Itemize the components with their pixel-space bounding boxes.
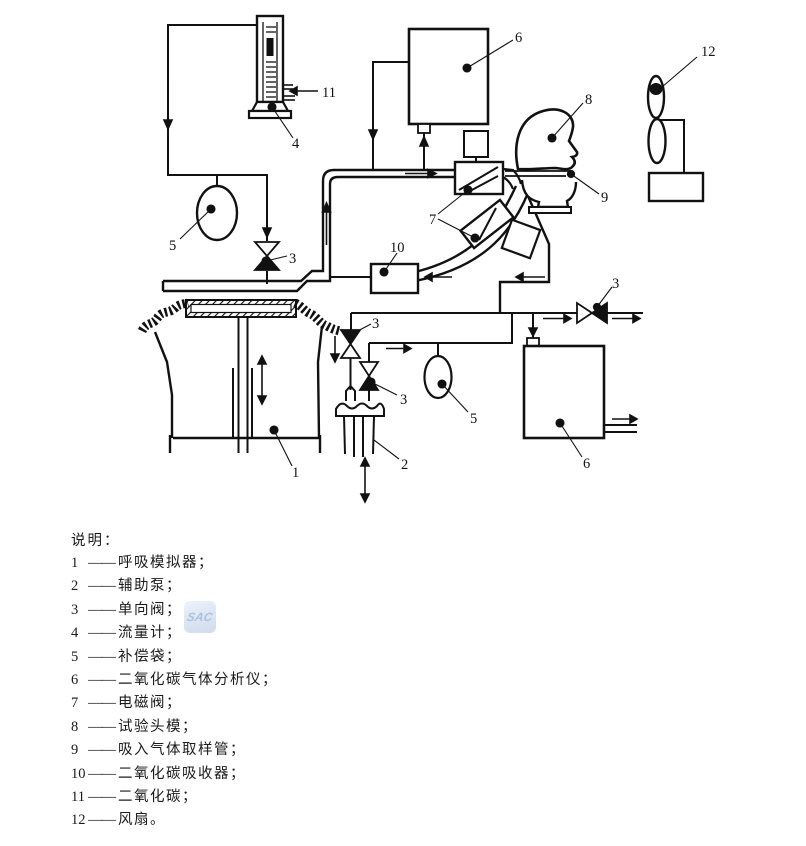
legend-num: 2 (71, 575, 88, 598)
legend-num: 12 (71, 809, 88, 832)
legend-dash: —— (88, 599, 118, 622)
legend-num: 1 (71, 552, 88, 575)
legend-item-9: 9——吸入气体取样管； (71, 739, 278, 762)
document-page: 4 11 5 3 1 2 3 3 5 3 6 6 7 8 9 10 12 SAC… (0, 0, 806, 846)
co2-analyzer-bottom (524, 338, 637, 438)
legend-item-8: 8——试验头模； (71, 716, 278, 739)
label-10: 10 (390, 240, 405, 256)
label-4: 4 (292, 136, 300, 152)
co2-absorber (371, 264, 418, 293)
mask-inlet-tube (503, 169, 521, 189)
legend-label: 补偿袋； (118, 649, 182, 665)
legend-dash: —— (88, 669, 118, 692)
legend-num: 8 (71, 716, 88, 739)
legend-dash: —— (88, 622, 118, 645)
mask (522, 180, 576, 213)
legend-item-5: 5——补偿袋； (71, 646, 278, 669)
legend-num: 10 (71, 763, 88, 786)
label-8: 8 (585, 92, 592, 108)
legend-item-6: 6——二氧化碳气体分析仪； (71, 669, 278, 692)
legend-label: 二氧化碳； (118, 789, 198, 805)
legend-dash: —— (88, 809, 118, 832)
legend-dash: —— (88, 716, 118, 739)
label-3-exhaust: 3 (612, 276, 619, 292)
legend-item-12: 12——风扇。 (71, 809, 278, 832)
solenoid-valve-a (455, 131, 503, 194)
legend-label: 电磁阀； (118, 695, 182, 711)
check-valve-exhaust (577, 303, 607, 323)
compensation-bag-right (425, 356, 452, 398)
legend-dash: —— (88, 763, 118, 786)
legend-dash: —— (88, 739, 118, 762)
legend-label: 二氧化碳吸收器； (118, 766, 246, 782)
legend-item-7: 7——电磁阀； (71, 692, 278, 715)
legend-num: 9 (71, 739, 88, 762)
legend-dash: —— (88, 646, 118, 669)
legend-num: 3 (71, 599, 88, 622)
label-12: 12 (701, 44, 716, 60)
label-3-pump-a: 3 (372, 316, 379, 332)
label-6-bottom: 6 (583, 456, 590, 472)
legend-item-11: 11——二氧化碳； (71, 786, 278, 809)
legend-title: 说明： (71, 529, 278, 552)
label-7: 7 (429, 212, 436, 228)
legend-item-4: 4——流量计； (71, 622, 278, 645)
legend-num: 11 (71, 786, 88, 809)
legend-label: 风扇。 (118, 812, 166, 828)
legend: 说明： 1——呼吸模拟器； 2——辅助泵； 3——单向阀； 4——流量计； 5—… (71, 529, 278, 833)
legend-dash: —— (88, 575, 118, 598)
co2-supply-loop (168, 25, 267, 284)
seal-right (295, 303, 340, 331)
legend-dash: —— (88, 692, 118, 715)
legend-label: 吸入气体取样管； (118, 742, 246, 758)
legend-label: 单向阀； (118, 602, 182, 618)
check-valve-left (255, 242, 279, 270)
label-6-top: 6 (515, 30, 522, 46)
breathing-simulator (142, 300, 340, 453)
auxiliary-pump (336, 386, 384, 457)
seal-left (142, 303, 188, 331)
label-2: 2 (401, 457, 408, 473)
legend-item-2: 2——辅助泵； (71, 575, 278, 598)
legend-num: 5 (71, 646, 88, 669)
label-3-pump-b: 3 (400, 392, 407, 408)
legend-num: 4 (71, 622, 88, 645)
legend-dash: —— (88, 786, 118, 809)
label-5-left: 5 (169, 238, 176, 254)
label-11: 11 (322, 85, 336, 101)
legend-dash: —— (88, 552, 118, 575)
legend-num: 7 (71, 692, 88, 715)
compensation-bag-left (197, 186, 237, 240)
flow-meter-float (267, 38, 274, 56)
schematic-diagram: 4 11 5 3 1 2 3 3 5 3 6 6 7 8 9 10 12 (0, 0, 806, 525)
label-5-right: 5 (470, 411, 477, 427)
co2-analyzer-top (409, 29, 488, 133)
legend-item-10: 10——二氧化碳吸收器； (71, 763, 278, 786)
legend-item-3: 3——单向阀； (71, 599, 278, 622)
legend-item-1: 1——呼吸模拟器； (71, 552, 278, 575)
test-head-model (516, 110, 577, 170)
label-9: 9 (601, 190, 608, 206)
legend-label: 二氧化碳气体分析仪； (118, 672, 278, 688)
legend-label: 辅助泵； (118, 578, 182, 594)
legend-label: 试验头模； (118, 719, 198, 735)
legend-label: 流量计； (118, 625, 182, 641)
label-1: 1 (292, 465, 299, 481)
legend-label: 呼吸模拟器； (118, 555, 214, 571)
fan (648, 76, 703, 201)
label-3-left: 3 (289, 251, 296, 267)
legend-num: 6 (71, 669, 88, 692)
